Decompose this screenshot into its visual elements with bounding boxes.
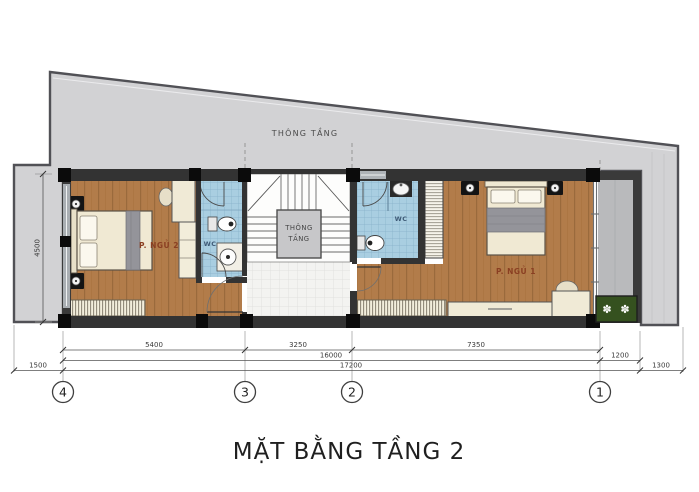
- flower-icon: ✽: [602, 303, 611, 316]
- dim-1300: 1300: [652, 362, 670, 370]
- bed-headboard: [71, 209, 77, 273]
- desk: [172, 177, 195, 222]
- dim-1200: 1200: [611, 352, 629, 360]
- floor-plan-svg: THÔNG TẦNG: [0, 0, 699, 492]
- pillow: [80, 216, 97, 240]
- toilet-flush: [368, 241, 373, 246]
- flower-icon: ✽: [620, 303, 629, 316]
- grid-axis-4: 4: [59, 385, 67, 400]
- stair-void-label-1: THÔNG: [284, 223, 312, 232]
- planter: ✽ ✽: [596, 296, 637, 322]
- stair-void-label-2: TẦNG: [287, 233, 309, 243]
- grid-axis-3: 3: [241, 385, 249, 400]
- low-cabinet: [448, 302, 553, 318]
- wc-right-label: WC: [395, 215, 408, 223]
- toilet-flush: [229, 222, 234, 227]
- toilet-tank: [357, 236, 365, 250]
- grid-axis-1: 1: [596, 385, 604, 400]
- blanket: [126, 211, 140, 270]
- lamp-dot: [75, 280, 77, 282]
- blanket: [487, 208, 545, 232]
- hall-floor: [247, 262, 350, 317]
- lamp-dot: [75, 203, 77, 205]
- window-grille: [67, 300, 145, 316]
- dim-17200: 17200: [340, 362, 362, 370]
- toilet-tank: [208, 217, 217, 231]
- dim-16000: 16000: [320, 352, 342, 360]
- wardrobe: [425, 180, 443, 258]
- wardrobe: [179, 222, 196, 278]
- bedroom1-label: P. NGỦ 1: [496, 266, 536, 276]
- stair-void-box: [277, 210, 321, 258]
- grid-axis-2: 2: [348, 385, 356, 400]
- pillow: [518, 190, 541, 203]
- desk-chair: [159, 188, 173, 206]
- floor-plan-page: THÔNG TẦNG: [0, 0, 699, 492]
- wc-left-label: WC: [204, 240, 217, 248]
- dim-7350: 7350: [467, 341, 485, 349]
- dim-4500: 4500: [34, 239, 42, 257]
- dim-5400: 5400: [145, 341, 163, 349]
- dim-3250: 3250: [289, 341, 307, 349]
- pillow: [491, 190, 515, 203]
- grid-bubbles: 4 3 2 1: [53, 382, 611, 403]
- bedroom2-label: P. NGỦ 2: [139, 240, 179, 250]
- window-grille: [357, 300, 446, 316]
- desk: [552, 291, 590, 318]
- pillow: [80, 243, 97, 267]
- dim-1500: 1500: [29, 362, 47, 370]
- page-title: MẶT BẰNG TẦNG 2: [233, 434, 466, 465]
- bed-headboard: [485, 181, 547, 187]
